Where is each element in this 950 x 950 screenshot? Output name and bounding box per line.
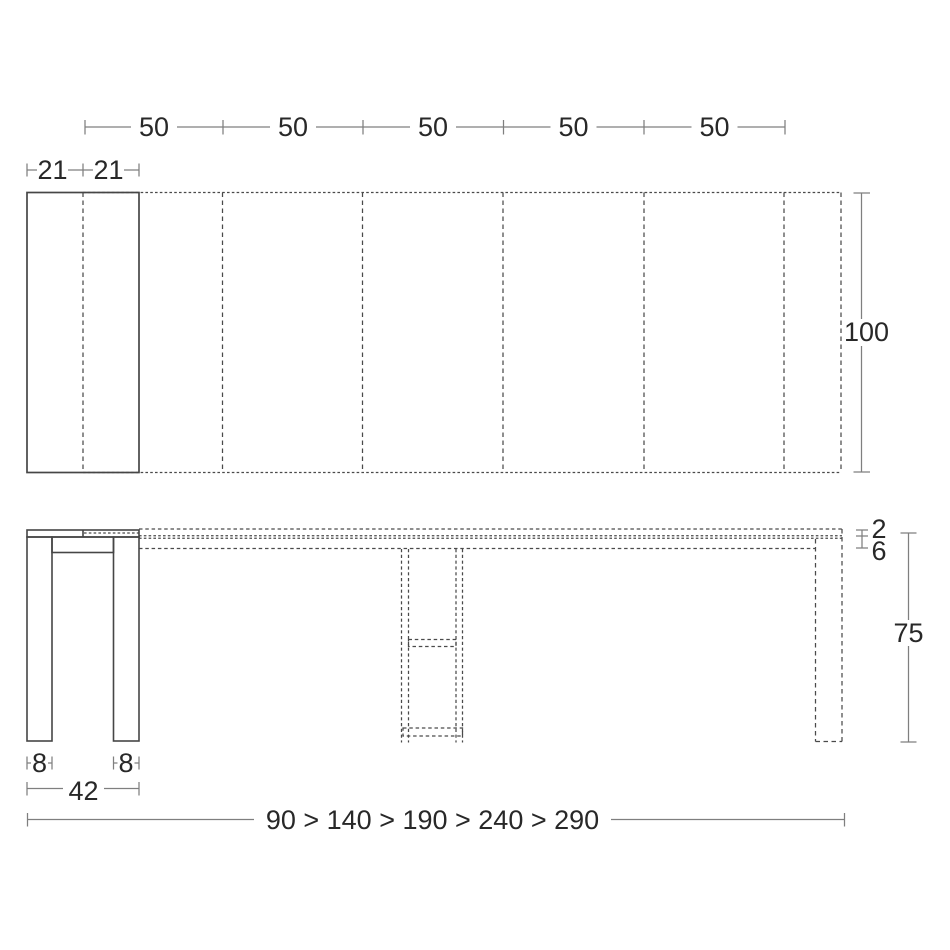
length-sequence-label: 90 > 140 > 190 > 240 > 290 — [266, 805, 599, 835]
leg-thickness-label: 8 — [32, 748, 47, 778]
base-depth-dimension: 42 — [27, 776, 139, 806]
width-dimension: 100 — [843, 193, 890, 472]
extension-segment-label: 50 — [558, 112, 588, 142]
extension-segment-label: 50 — [418, 112, 448, 142]
leg-thickness-label: 8 — [118, 748, 133, 778]
center-support-cross-rail — [409, 640, 457, 647]
console-table-technical-drawing: 50 50 50 50 50 21 21 100 — [0, 0, 950, 950]
closed-half-label: 21 — [93, 155, 123, 185]
table-height-label: 75 — [893, 618, 923, 648]
front-leg — [27, 537, 52, 741]
drawing-canvas: 50 50 50 50 50 21 21 100 — [0, 0, 950, 950]
apron-side-profile — [52, 537, 114, 553]
top-thickness-dimension: 2 6 — [856, 514, 887, 566]
base-depth-label: 42 — [68, 776, 98, 806]
leg-thickness-dimensions: 8 8 — [27, 748, 139, 778]
closed-half-label: 21 — [37, 155, 67, 185]
extension-scale-dimension: 50 50 50 50 50 — [85, 112, 785, 142]
top-view — [27, 193, 841, 473]
back-leg — [114, 537, 140, 741]
center-support-foot-rail — [403, 728, 463, 736]
side-view — [27, 529, 842, 743]
extension-segment-label: 50 — [278, 112, 308, 142]
closed-depth-dimension: 21 21 — [27, 155, 139, 185]
extension-segment-label: 50 — [139, 112, 169, 142]
height-dimension: 75 — [890, 533, 927, 742]
top-width-label: 100 — [844, 317, 889, 347]
length-sequence-dimension: 90 > 140 > 190 > 240 > 290 — [28, 805, 845, 835]
apron-height-label: 6 — [871, 536, 886, 566]
extension-segment-label: 50 — [699, 112, 729, 142]
